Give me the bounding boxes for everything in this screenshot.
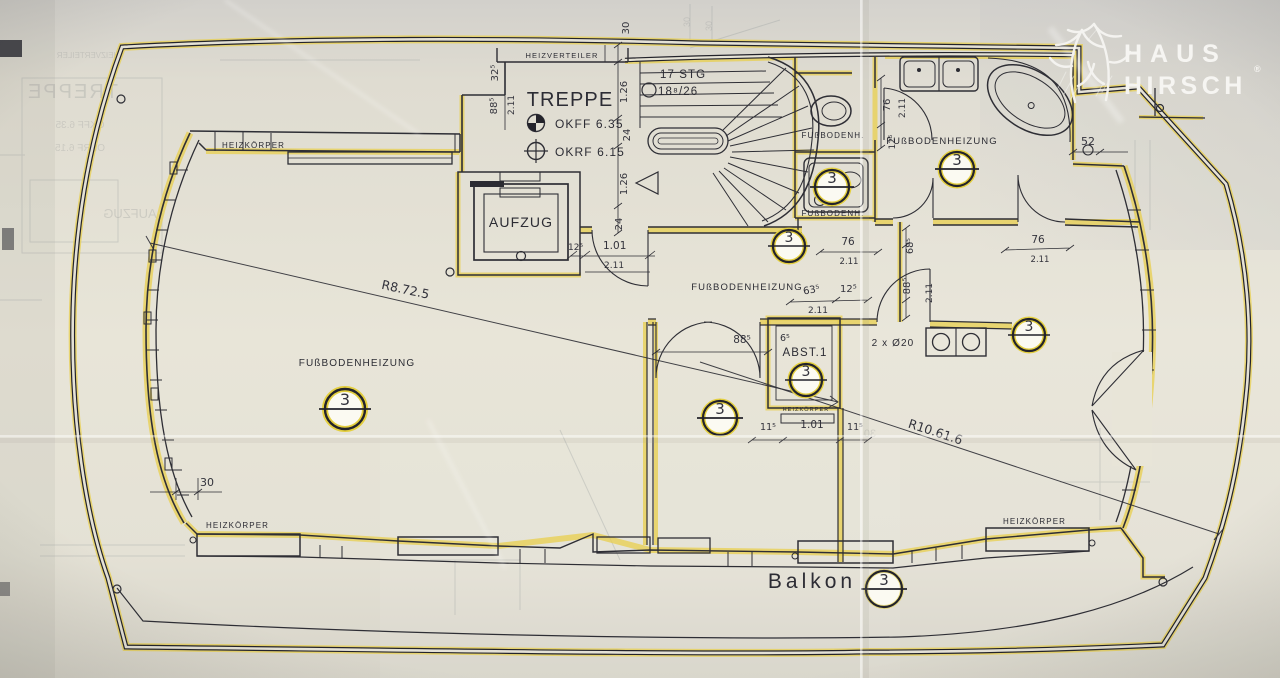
logo-line2: HIRSCH [1124, 72, 1247, 100]
registered-mark: ® [1254, 64, 1261, 74]
logo-line1: HAUS [1124, 40, 1227, 68]
floor-plan-photo: HEIZVERTEILER TREPPE OKFF 6.35 OKRF 6.15… [0, 0, 1280, 678]
floor-plan-drawing: HEIZVERTEILER TREPPE OKFF 6.35 OKRF 6.15… [0, 0, 1280, 678]
photo-vignette [0, 0, 1280, 678]
